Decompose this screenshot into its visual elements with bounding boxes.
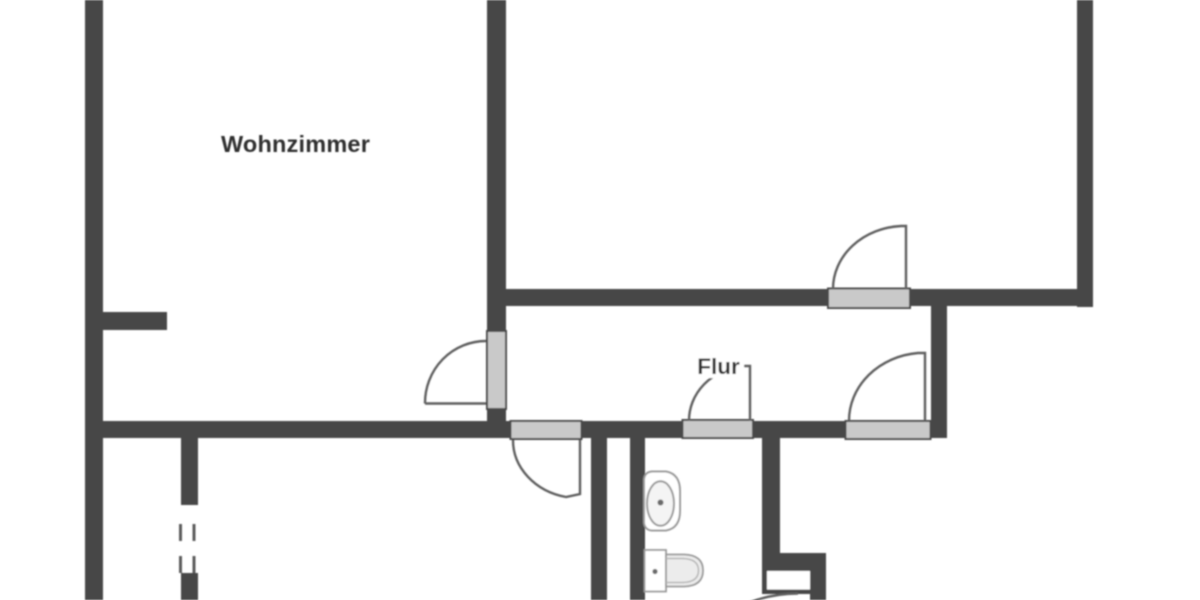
svg-text:Wohnzimmer: Wohnzimmer bbox=[221, 131, 370, 157]
svg-text:Flur: Flur bbox=[697, 354, 740, 379]
